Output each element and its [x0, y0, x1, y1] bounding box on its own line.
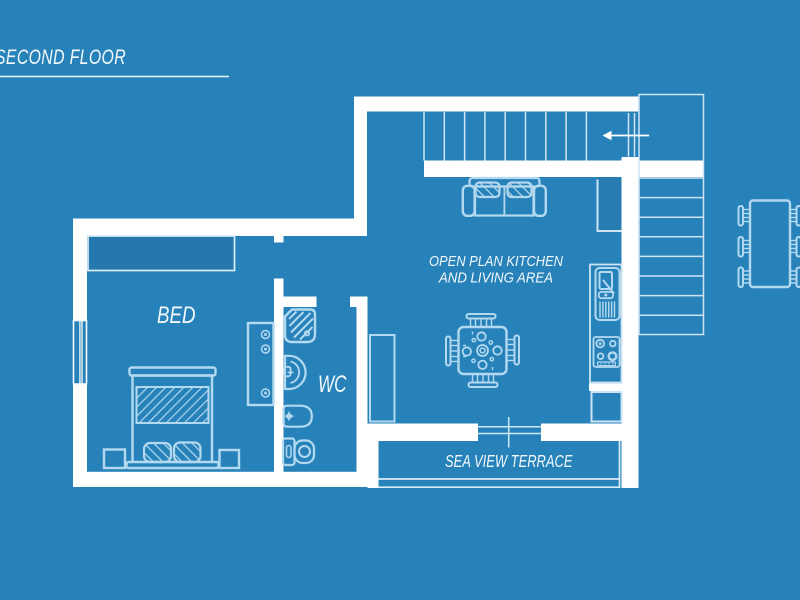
svg-text:SEA VIEW TERRACE: SEA VIEW TERRACE — [445, 451, 573, 471]
svg-text:WC: WC — [318, 371, 347, 398]
svg-text:BED: BED — [157, 302, 196, 329]
svg-text:OPEN PLAN KITCHEN: OPEN PLAN KITCHEN — [429, 254, 563, 270]
svg-text:AND LIVING AREA: AND LIVING AREA — [438, 271, 553, 287]
svg-text:SECOND FLOOR: SECOND FLOOR — [0, 45, 126, 69]
